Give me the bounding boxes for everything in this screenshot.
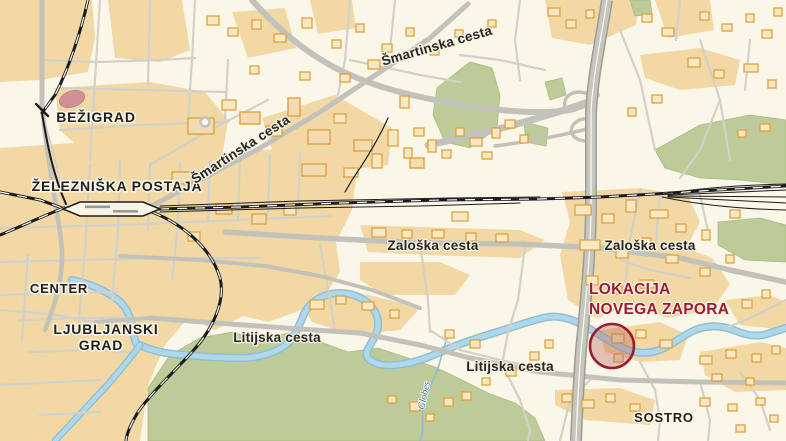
road-label-litijska-right: Litijska cesta xyxy=(466,359,554,374)
road-label-litijska-left: Litijska cesta xyxy=(233,330,321,345)
road-label-zaloska-right: Zaloška cesta xyxy=(604,238,695,253)
district-label-ljubljanski-grad-line1: LJUBLJANSKI xyxy=(53,321,158,337)
marker-label-line2: NOVEGA ZAPORA xyxy=(589,301,729,318)
roundabout xyxy=(201,118,210,127)
map-canvas: BEŽIGRAD ŽELEZNIŠKA POSTAJA CENTER LJUBL… xyxy=(0,0,786,441)
railway-station-symbol xyxy=(63,202,160,216)
district-label-ljubljanski-grad-line2: GRAD xyxy=(79,337,123,353)
district-label-sostro: SOSTRO xyxy=(634,410,694,425)
district-label-center: CENTER xyxy=(30,281,88,296)
station-label: ŽELEZNIŠKA POSTAJA xyxy=(32,177,203,194)
district-label-bezigrad: BEŽIGRAD xyxy=(56,108,136,125)
new-prison-location-marker xyxy=(590,324,634,368)
city-map: BEŽIGRAD ŽELEZNIŠKA POSTAJA CENTER LJUBL… xyxy=(0,0,786,441)
marker-label-line1: LOKACIJA xyxy=(589,281,671,298)
road-label-zaloska-left: Zaloška cesta xyxy=(387,238,478,253)
